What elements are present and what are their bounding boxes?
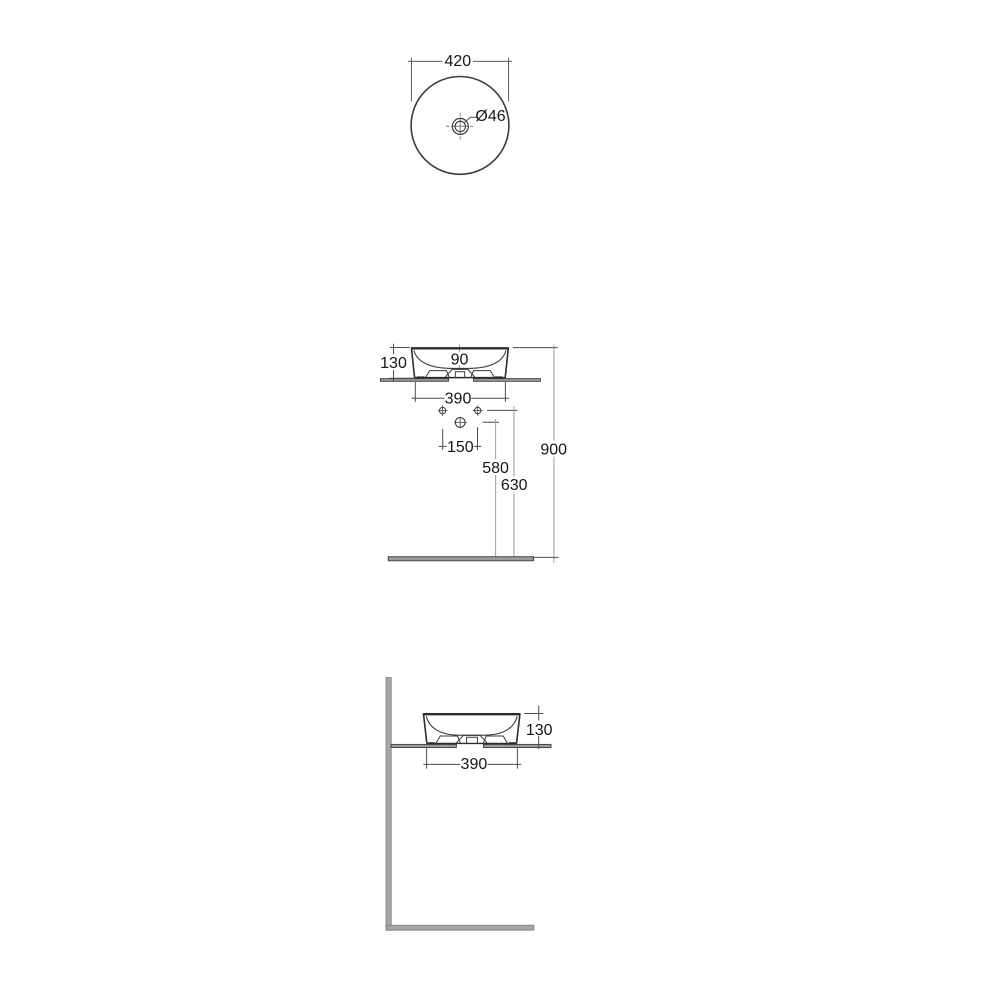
- svg-text:630: 630: [501, 477, 528, 494]
- svg-text:130: 130: [380, 355, 407, 372]
- svg-text:Ø46: Ø46: [475, 108, 505, 125]
- svg-text:390: 390: [461, 756, 488, 773]
- svg-text:900: 900: [540, 442, 567, 459]
- svg-text:580: 580: [482, 460, 509, 477]
- svg-text:150: 150: [447, 439, 474, 456]
- svg-text:420: 420: [444, 53, 471, 70]
- svg-text:390: 390: [445, 391, 472, 408]
- svg-text:130: 130: [526, 722, 553, 739]
- svg-text:90: 90: [451, 352, 469, 369]
